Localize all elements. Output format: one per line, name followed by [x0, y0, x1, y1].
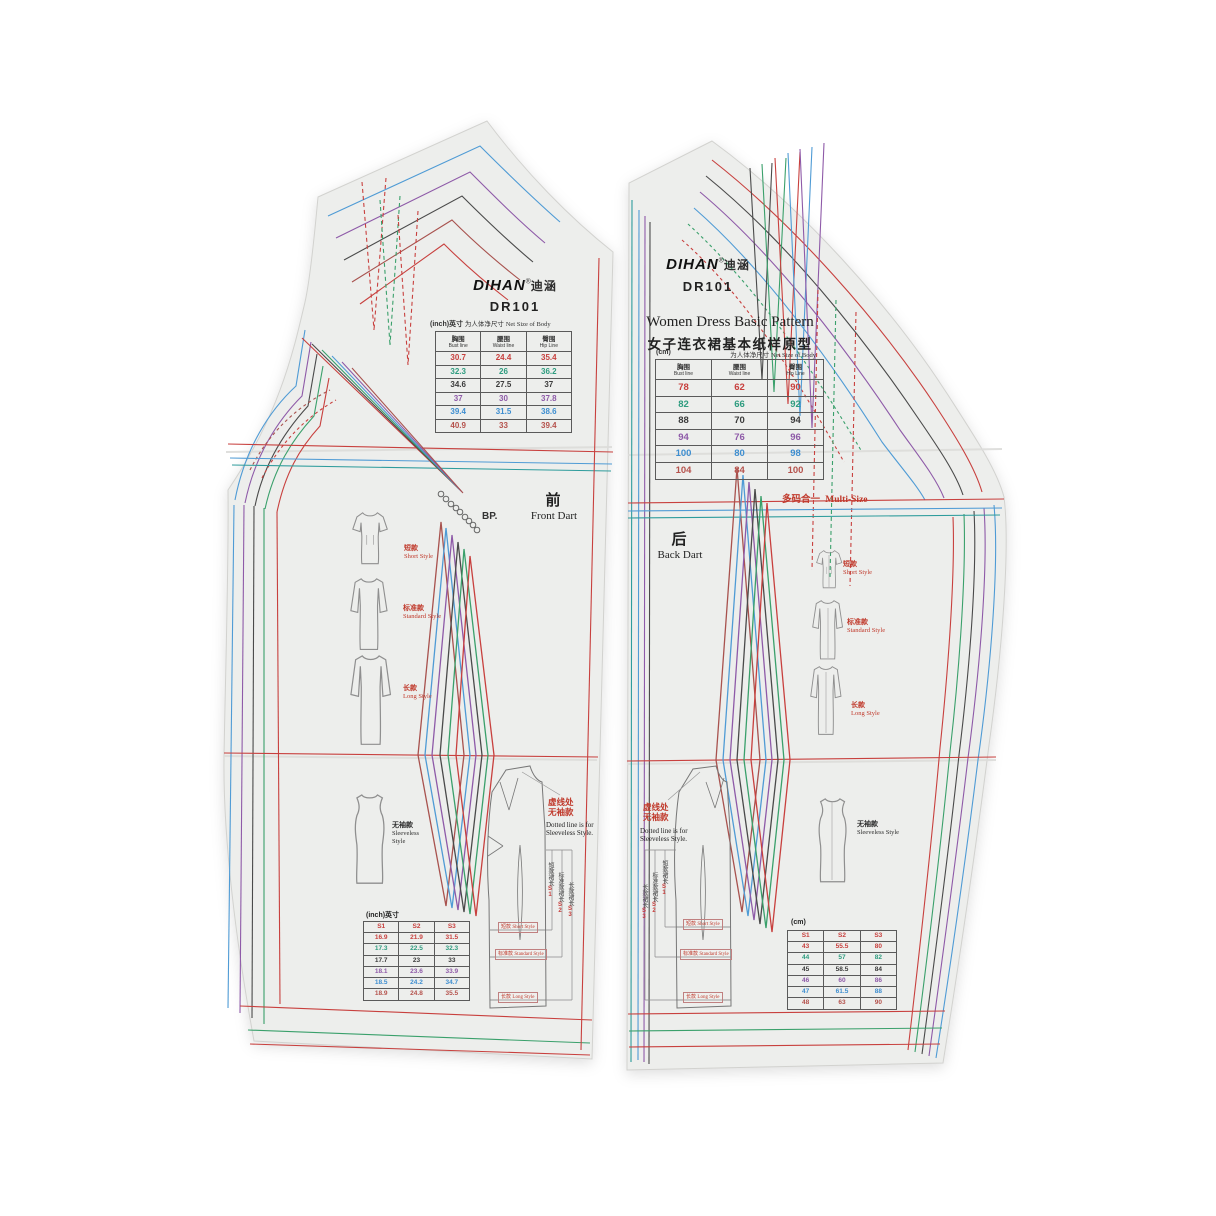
front-division-standard: 标准款 Standard Style: [495, 949, 547, 960]
table-row: 786290: [656, 380, 823, 396]
table-cell: 86: [861, 976, 896, 986]
table-row: 4761.588: [788, 986, 896, 997]
table-cell: 21.9: [399, 933, 434, 943]
part-name-cn: 前: [510, 489, 598, 510]
table-cell: 60: [824, 976, 860, 986]
table-cell: 82: [861, 953, 896, 963]
table-header-row: 胸围 Bust line 腰围 Waist line 臀围 Hip Line: [656, 360, 823, 380]
back-bottom-unit: (cm): [791, 919, 806, 926]
front-sleeveless-style-label: 无袖款 Sleeveless Style: [392, 822, 434, 846]
brand-name: DIHAN: [473, 277, 526, 294]
table-cell: 16.9: [364, 933, 399, 943]
front-length-table-inch: S1 S2 S3 16.921.931.517.322.532.317.7233…: [363, 921, 470, 1001]
part-name-en: Back Dart: [640, 549, 720, 561]
back-long-style-label: 长款 Long Style: [851, 702, 880, 718]
front-model-number: DR101: [470, 299, 560, 314]
table-cell: 90: [768, 380, 823, 396]
table-cell: 33: [481, 420, 526, 433]
table-cell: 94: [656, 430, 712, 446]
front-unit-note: (inch)英寸 为人体净尺寸 Net Size of Body: [430, 318, 572, 329]
table-cell: 47: [788, 987, 824, 997]
front-dotted-note-en: Dotted line is for Sleeveless Style.: [546, 821, 608, 837]
net-size-cn: 为人体净尺寸: [465, 321, 504, 328]
table-cell: 70: [712, 413, 768, 429]
table-row: 10484100: [656, 462, 823, 479]
back-length-mark-s3: 长款裙长S3: [640, 884, 647, 944]
table-cell: 17.7: [364, 956, 399, 966]
back-unit-note: (cm) 为人体净尺寸 Net Size of Body: [656, 349, 816, 359]
front-standard-style-label: 标准款 Standard Style: [403, 605, 441, 621]
table-cell: 32.3: [435, 944, 469, 954]
table-cell: 55.5: [824, 942, 860, 952]
table-cell: 35.5: [435, 989, 469, 999]
table-cell: 37: [436, 393, 481, 406]
front-dotted-note-cn: 虚线处 无袖款: [548, 797, 574, 817]
table-cell: 26: [481, 366, 526, 379]
back-model-number: DR101: [668, 279, 748, 294]
table-cell: 31.5: [481, 406, 526, 419]
back-sleeveless-style-label: 无袖款 Sleeveless Style: [857, 821, 901, 837]
unit-label: (cm): [656, 349, 671, 359]
table-cell: 38.6: [527, 406, 571, 419]
table-row: 373037.8: [436, 392, 571, 406]
table-row: 445782: [788, 952, 896, 963]
table-row: 466086: [788, 975, 896, 986]
table-cell: 23: [399, 956, 434, 966]
header-bust: 胸围 Bust line: [656, 360, 712, 379]
table-body: 786290826692887094947696100809810484100: [656, 380, 823, 479]
table-cell: 18.1: [364, 967, 399, 977]
table-cell: 82: [656, 397, 712, 413]
table-header-row: S1 S2 S3: [788, 931, 896, 942]
table-cell: 27.5: [481, 379, 526, 392]
table-row: 17.72333: [364, 955, 469, 966]
table-row: 30.724.435.4: [436, 352, 571, 365]
table-cell: 46: [788, 976, 824, 986]
table-cell: 66: [712, 397, 768, 413]
front-division-short: 短款 Short Style: [498, 922, 538, 933]
back-length-table-cm: S1 S2 S3 4355.5804457824558.584466086476…: [787, 930, 897, 1010]
front-brand-logo: DIHAN®迪涵: [458, 277, 572, 295]
part-name-en: Front Dart: [510, 510, 598, 522]
table-header-row: S1 S2 S3: [364, 922, 469, 933]
table-row: 826692: [656, 396, 823, 413]
brand-name-cn: 迪涵: [724, 258, 750, 272]
table-cell: 35.4: [527, 352, 571, 365]
table-cell: 84: [861, 965, 896, 975]
table-cell: 24.4: [481, 352, 526, 365]
table-cell: 43: [788, 942, 824, 952]
table-row: 32.32636.2: [436, 365, 571, 379]
table-cell: 100: [656, 446, 712, 462]
table-cell: 40.9: [436, 420, 481, 433]
sewing-pattern-photo: DIHAN®迪涵 DR101 (inch)英寸 为人体净尺寸 Net Size …: [0, 0, 1216, 1216]
table-row: 39.431.538.6: [436, 405, 571, 419]
back-dotted-note-cn: 虚线处 无袖款: [643, 802, 669, 822]
table-row: 486390: [788, 997, 896, 1008]
table-row: 4355.580: [788, 942, 896, 952]
table-cell: 18.5: [364, 978, 399, 988]
back-size-table-cm: 胸围 Bust line 腰围 Waist line 臀围 Hip Line 7…: [655, 359, 824, 480]
unit-label: (inch)英寸: [430, 321, 463, 328]
table-cell: 88: [656, 413, 712, 429]
front-length-mark-s3: 长款裙长S3: [566, 882, 573, 942]
back-length-mark-s1: 短款裙长S1: [660, 860, 667, 920]
table-body: 30.724.435.432.32636.234.627.537373037.8…: [436, 352, 571, 432]
table-cell: 96: [768, 430, 823, 446]
table-row: 4558.584: [788, 964, 896, 975]
table-row: 887094: [656, 412, 823, 429]
table-row: 18.123.633.9: [364, 966, 469, 977]
front-division-long: 长款 Long Style: [498, 992, 538, 1003]
table-row: 18.524.234.7: [364, 977, 469, 988]
table-cell: 92: [768, 397, 823, 413]
table-cell: 17.3: [364, 944, 399, 954]
table-row: 947696: [656, 429, 823, 446]
net-size-note: 为人体净尺寸 Net Size of Body: [730, 349, 816, 359]
part-name-cn: 后: [640, 528, 720, 549]
table-body: 16.921.931.517.322.532.317.7233318.123.6…: [364, 933, 469, 1000]
table-cell: 104: [656, 463, 712, 479]
table-cell: 98: [768, 446, 823, 462]
table-cell: 34.7: [435, 978, 469, 988]
table-cell: 18.9: [364, 989, 399, 999]
header-waist: 腰围 Waist line: [481, 332, 526, 351]
header-hip: 臀围 Hip Line: [527, 332, 571, 351]
table-cell: 23.6: [399, 967, 434, 977]
front-bottom-unit: (inch)英寸: [366, 910, 399, 920]
table-cell: 48: [788, 998, 824, 1008]
table-cell: 80: [861, 942, 896, 952]
multi-size-label: 多码合一 Multi-Size: [782, 491, 868, 505]
table-cell: 37.8: [527, 393, 571, 406]
pattern-linework: [0, 0, 1216, 1216]
table-cell: 45: [788, 965, 824, 975]
table-cell: 34.6: [436, 379, 481, 392]
back-division-standard: 标准款 Standard Style: [680, 949, 732, 960]
table-row: 16.921.931.5: [364, 933, 469, 943]
table-cell: 94: [768, 413, 823, 429]
table-cell: 90: [861, 998, 896, 1008]
table-cell: 22.5: [399, 944, 434, 954]
table-cell: 39.4: [436, 406, 481, 419]
brand-name-cn: 迪涵: [531, 279, 557, 293]
table-cell: 76: [712, 430, 768, 446]
table-cell: 32.3: [436, 366, 481, 379]
table-body: 4355.5804457824558.5844660864761.5884863…: [788, 942, 896, 1009]
header-waist: 腰围 Waist line: [712, 360, 768, 379]
front-part-label: 前 Front Dart: [510, 489, 598, 522]
header-bust: 胸围 Bust line: [436, 332, 481, 351]
table-cell: 30: [481, 393, 526, 406]
header-hip: 臀围 Hip Line: [768, 360, 823, 379]
front-length-mark-s2: 标准款裙长S2: [556, 872, 563, 932]
table-cell: 84: [712, 463, 768, 479]
table-row: 40.93339.4: [436, 419, 571, 433]
back-standard-style-label: 标准款 Standard Style: [847, 619, 885, 635]
table-row: 34.627.537: [436, 378, 571, 392]
table-row: 1008098: [656, 445, 823, 462]
table-cell: 57: [824, 953, 860, 963]
brand-name: DIHAN: [666, 256, 719, 273]
front-size-table-inch: 胸围 Bust line 腰围 Waist line 臀围 Hip Line 3…: [435, 331, 572, 433]
table-cell: 31.5: [435, 933, 469, 943]
back-brand-logo: DIHAN®迪涵: [656, 256, 760, 274]
table-cell: 37: [527, 379, 571, 392]
back-part-label: 后 Back Dart: [640, 528, 720, 561]
table-cell: 30.7: [436, 352, 481, 365]
table-cell: 61.5: [824, 987, 860, 997]
table-cell: 78: [656, 380, 712, 396]
table-cell: 33.9: [435, 967, 469, 977]
net-size-en: Net Size of Body: [506, 321, 551, 328]
table-header-row: 胸围 Bust line 腰围 Waist line 臀围 Hip Line: [436, 332, 571, 352]
back-dotted-note-en: Dotted line is for Sleeveless Style.: [640, 827, 706, 843]
table-cell: 100: [768, 463, 823, 479]
product-title-en: Women Dress Basic Pattern: [630, 314, 830, 331]
front-length-mark-s1: 短款裙长S1: [546, 862, 553, 922]
table-cell: 33: [435, 956, 469, 966]
back-division-long: 长款 Long Style: [683, 992, 723, 1003]
front-long-style-label: 长款 Long Style: [403, 685, 432, 701]
table-row: 17.322.532.3: [364, 943, 469, 954]
paper-pieces: [224, 121, 1006, 1070]
back-short-style-label: 短款 Short Style: [843, 561, 872, 577]
table-cell: 88: [861, 987, 896, 997]
table-cell: 80: [712, 446, 768, 462]
table-cell: 36.2: [527, 366, 571, 379]
back-division-short: 短款 Short Style: [683, 919, 723, 930]
table-cell: 24.8: [399, 989, 434, 999]
table-cell: 62: [712, 380, 768, 396]
front-short-style-label: 短款 Short Style: [404, 545, 433, 561]
table-cell: 63: [824, 998, 860, 1008]
table-row: 18.924.835.5: [364, 988, 469, 999]
table-cell: 24.2: [399, 978, 434, 988]
bust-point-label: BP.: [482, 511, 497, 522]
back-length-mark-s2: 标准款裙长S2: [650, 872, 657, 932]
table-cell: 39.4: [527, 420, 571, 433]
table-cell: 44: [788, 953, 824, 963]
table-cell: 58.5: [824, 965, 860, 975]
